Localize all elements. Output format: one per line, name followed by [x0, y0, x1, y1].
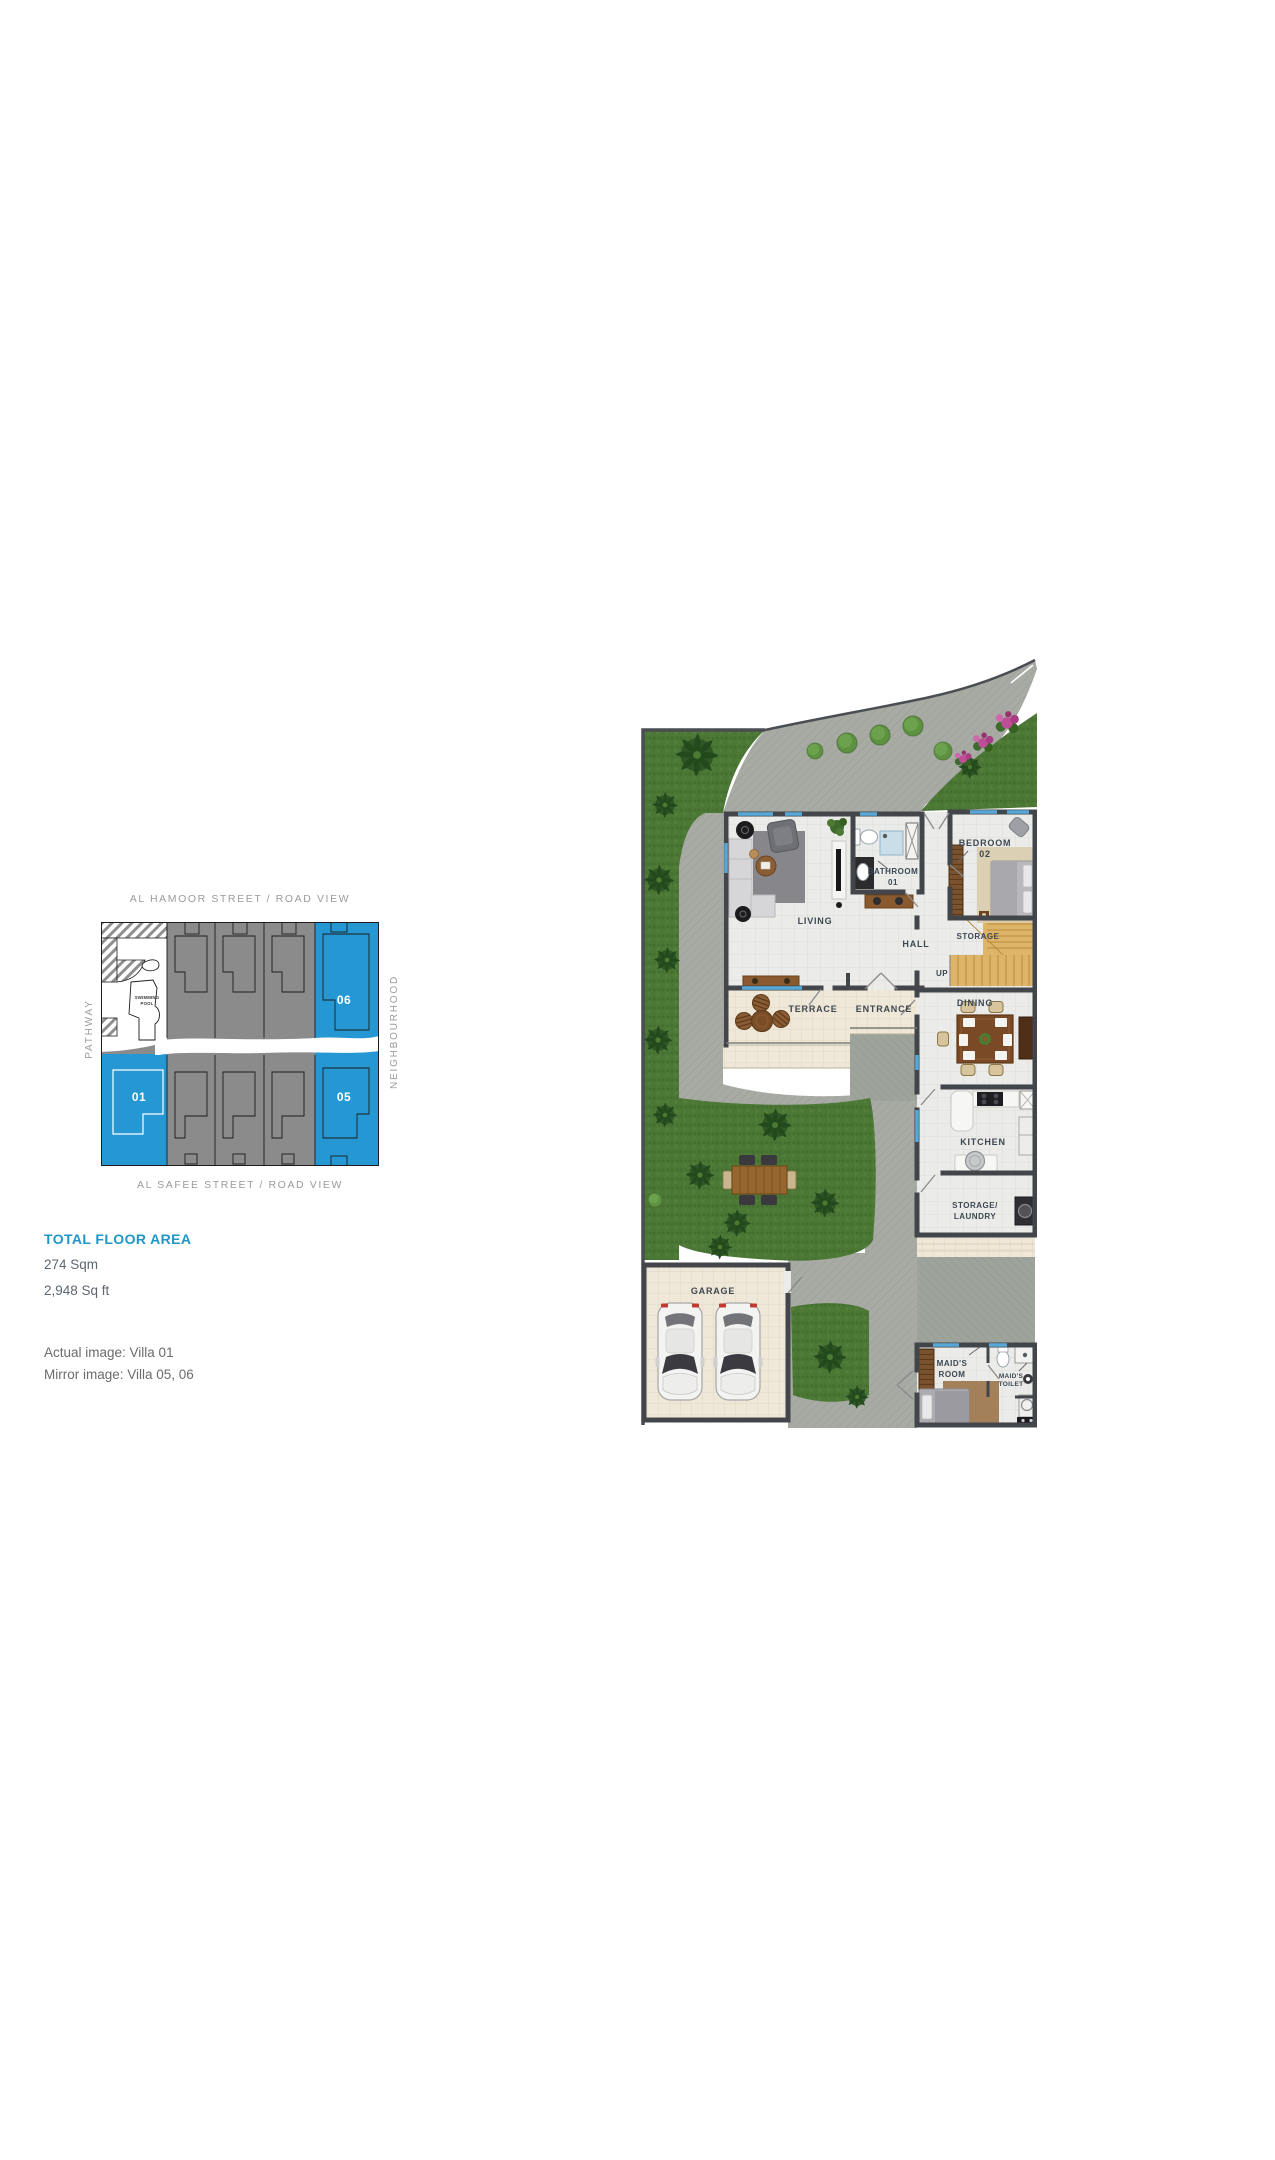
room-label-living: LIVING	[798, 916, 833, 926]
label-up: UP	[936, 969, 948, 978]
room-label-bathroom-num: 01	[888, 878, 898, 887]
maids-toilet-icon	[997, 1351, 1009, 1367]
area-sqm: 274 Sqm	[44, 1252, 194, 1278]
room-label-garage: GARAGE	[691, 1286, 735, 1296]
kitchen-island	[951, 1091, 973, 1131]
room-label-hall: HALL	[902, 939, 929, 949]
room-label-kitchen: KITCHEN	[960, 1137, 1006, 1147]
room-label-maids-room-1: MAID'S	[937, 1359, 968, 1368]
rear-steps	[917, 1237, 1035, 1257]
villa-06-number: 06	[337, 993, 351, 1007]
floor-plan: LIVING BATHROOM 01 BEDROOM 02 HALL STORA…	[625, 655, 1037, 1428]
street-top-label: AL HAMOOR STREET / ROAD VIEW	[90, 893, 390, 905]
room-label-storage: STORAGE	[957, 932, 1000, 941]
room-label-dining: DINING	[957, 998, 993, 1008]
kitchen-bin	[966, 1152, 985, 1171]
terrace-table	[752, 1011, 773, 1032]
console-table	[743, 976, 799, 987]
bush-icon	[807, 743, 823, 759]
room-label-storage-laundry-2: LAUNDRY	[954, 1212, 996, 1221]
villa-01-number: 01	[132, 1090, 146, 1104]
tv	[836, 849, 841, 891]
room-label-maids-toilet-2: TOILET	[999, 1381, 1024, 1388]
total-floor-area-title: TOTAL FLOOR AREA	[44, 1226, 194, 1252]
car-icon	[656, 1303, 705, 1400]
page: { "site_plan": { "street_top": "AL HAMOO…	[0, 0, 1275, 2160]
mirror-image-note: Mirror image: Villa 05, 06	[44, 1364, 194, 1386]
side-table	[736, 821, 754, 839]
actual-image-note: Actual image: Villa 01	[44, 1342, 194, 1364]
area-summary: TOTAL FLOOR AREA 274 Sqm 2,948 Sq ft Act…	[44, 1226, 194, 1386]
hall-console	[865, 895, 913, 908]
toilet-icon	[861, 830, 878, 844]
room-label-bedroom-num: 02	[979, 849, 991, 859]
room-label-storage-laundry-1: STORAGE/	[952, 1201, 998, 1210]
pool-label-line2: POOL	[141, 1001, 154, 1006]
pool-label-line1: SWIMMING	[135, 995, 160, 1000]
room-label-maids-toilet-1: MAID'S	[999, 1373, 1024, 1380]
room-label-maids-room-2: ROOM	[939, 1370, 966, 1379]
area-sqft: 2,948 Sq ft	[44, 1278, 194, 1304]
villa-zone-bottom-left	[101, 1054, 167, 1166]
pathway-label: PATHWAY	[84, 984, 98, 1074]
room-label-entrance: ENTRANCE	[856, 1004, 912, 1014]
street-bottom-label: AL SAFEE STREET / ROAD VIEW	[90, 1179, 390, 1191]
room-label-terrace: TERRACE	[788, 1004, 837, 1014]
neighbourhood-label: NEIGHBOURHOOD	[389, 972, 403, 1092]
car-icon-2	[714, 1303, 763, 1400]
patio-strip	[723, 1045, 850, 1068]
room-label-bathroom: BATHROOM	[868, 867, 919, 876]
cooktop	[977, 1092, 1003, 1106]
room-label-bedroom: BEDROOM	[959, 838, 1012, 848]
site-location-map: SWIMMING POOL 06 05 01	[101, 922, 379, 1166]
villa-05-number: 05	[337, 1090, 351, 1104]
